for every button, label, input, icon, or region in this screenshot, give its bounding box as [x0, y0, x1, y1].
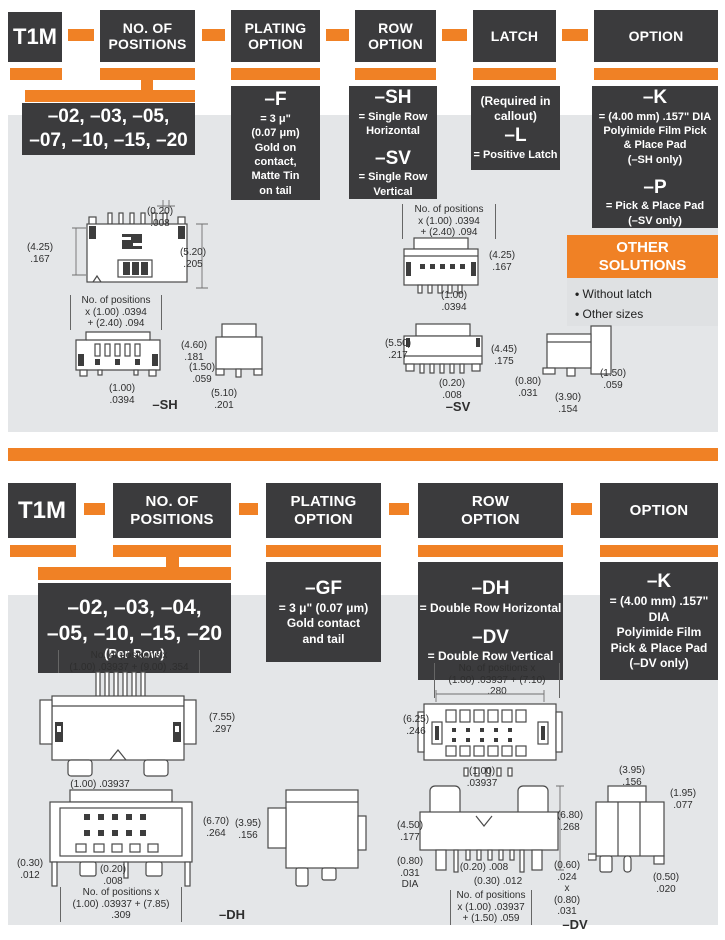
dim-label: (4.25) .167	[20, 242, 60, 265]
dim-label: (0.30) .012	[464, 876, 532, 888]
dim-label: (6.25) .246	[396, 714, 436, 737]
positions-values-2: –02, –03, –04, –05, –10, –15, –20	[47, 595, 222, 645]
dim-label: (0.20) .008	[136, 206, 184, 229]
underline-bar	[355, 68, 436, 80]
dim-formula: No. of positions x (1.00) .0394 + (2.40)…	[70, 295, 162, 330]
option-desc-k: = (4.00 mm) .157" DIA Polyimide Film Pic…	[599, 110, 712, 167]
underline-bar	[231, 68, 320, 80]
connector-stub	[166, 557, 179, 567]
dim-label: (0.80) .031 DIA	[390, 856, 430, 891]
option-code-p: –P	[643, 177, 666, 199]
plating-detail-box-2: –GF = 3 μ" (0.07 μm) Gold contact and ta…	[266, 562, 381, 662]
underline-bar	[10, 545, 76, 557]
plating-code: –F	[264, 89, 286, 111]
dim-label: (5.50) .217	[378, 338, 418, 361]
row-desc-dh: = Double Row Horizontal	[420, 601, 562, 617]
row-code-dh: –DH	[471, 578, 509, 600]
dim-formula: No. of positions x (1.00) .03937 + (1.50…	[450, 890, 532, 925]
latch-header-box: LATCH	[473, 10, 556, 62]
flow-connector-dash	[202, 29, 225, 41]
connector-wide-bar	[38, 567, 231, 580]
flow-connector-dash	[571, 503, 592, 515]
option-detail-box-2: –K = (4.00 mm) .157" DIA Polyimide Film …	[600, 562, 718, 680]
other-solutions-title: OTHER SOLUTIONS	[599, 239, 687, 275]
option-header-label-2: OPTION	[630, 502, 689, 519]
latch-header-label: LATCH	[491, 28, 538, 44]
sv-view-label: –SV	[438, 400, 478, 415]
positions-header-box-2: NO. OF POSITIONS	[113, 483, 231, 538]
dim-label: (1.00) .0394	[432, 290, 476, 313]
row-code-sv: –SV	[375, 148, 411, 170]
dim-label: (0.60) .024 x (0.80) .031	[548, 860, 586, 918]
underline-bar	[594, 68, 718, 80]
underline-bar	[10, 68, 62, 80]
option-desc-p: = Pick & Place Pad (–SV only)	[606, 199, 704, 228]
dv-view-label: –DV	[553, 918, 597, 933]
part-number-label: T1M	[13, 24, 57, 50]
option-code-k: –K	[643, 87, 667, 109]
dim-label: (1.50) .059	[592, 368, 634, 391]
positions-header-box: NO. OF POSITIONS	[100, 10, 195, 62]
positions-header-label: NO. OF POSITIONS	[108, 20, 186, 52]
dim-label: (0.50) .020	[644, 872, 688, 895]
dim-label: (0.30) .012	[10, 858, 50, 881]
datasheet-page: T1M NO. OF POSITIONS PLATING OPTION ROW …	[0, 0, 725, 940]
option-header-label: OPTION	[629, 28, 684, 44]
dim-label: (6.80) .268	[550, 810, 590, 833]
row-code-dv: –DV	[472, 627, 509, 649]
underline-bar	[473, 68, 556, 80]
positions-header-label-2: NO. OF POSITIONS	[130, 493, 213, 528]
dim-label: (0.20) .008	[92, 864, 134, 887]
row-header-label: ROW OPTION	[368, 20, 423, 52]
flow-connector-dash	[68, 29, 94, 41]
option-desc-k2: = (4.00 mm) .157" DIA Polyimide Film Pic…	[600, 594, 718, 672]
dim-label: (4.25) .167	[482, 250, 522, 273]
dim-label: (0.20) .008	[452, 862, 516, 874]
dim-label: (7.55) .297	[200, 712, 244, 735]
flow-connector-dash	[239, 503, 258, 515]
flow-connector-dash	[84, 503, 105, 515]
flow-connector-dash	[389, 503, 409, 515]
dim-formula: No. of positions x (1.00) .0394 + (2.40)…	[402, 204, 496, 239]
option-header-box-2: OPTION	[600, 483, 718, 538]
dim-label: (5.20) .205	[172, 247, 214, 270]
row-header-box: ROW OPTION	[355, 10, 436, 62]
row-header-box-2: ROW OPTION	[418, 483, 563, 538]
sv-top-view-drawing	[396, 236, 486, 294]
latch-code: –L	[504, 125, 526, 147]
plating-desc-2: = 3 μ" (0.07 μm) Gold contact and tail	[279, 601, 368, 648]
plating-desc: = 3 μ" (0.07 μm) Gold on contact, Matte …	[251, 112, 299, 198]
plating-header-label-2: PLATING OPTION	[290, 493, 356, 528]
positions-values: –02, –03, –05, –07, –10, –15, –20	[29, 105, 187, 153]
other-solutions-body: Without latch Other sizes	[567, 278, 718, 326]
plating-detail-box: –F = 3 μ" (0.07 μm) Gold on contact, Mat…	[231, 86, 320, 200]
underline-bar	[100, 68, 195, 80]
sh-view-label: –SH	[145, 398, 185, 413]
underline-bar	[113, 545, 231, 557]
latch-desc: = Positive Latch	[473, 148, 557, 162]
dim-label: (0.20) .008	[430, 378, 474, 401]
section-divider-bar	[8, 448, 718, 461]
flow-connector-dash	[562, 29, 588, 41]
flow-connector-dash	[326, 29, 349, 41]
dim-label: (5.10) .201	[200, 388, 248, 411]
plating-header-label: PLATING OPTION	[245, 20, 307, 52]
dim-label: (1.00) .0394	[98, 383, 146, 406]
other-solutions-header: OTHER SOLUTIONS	[567, 235, 718, 278]
latch-detail-box: (Required in callout) –L = Positive Latc…	[471, 86, 560, 170]
row-code-sh: –SH	[375, 87, 412, 109]
dim-label: (0.80) .031	[508, 376, 548, 399]
part-number-label-2: T1M	[18, 497, 66, 525]
row-desc-sv: = Single Row Vertical	[359, 170, 428, 199]
option-detail-box: –K = (4.00 mm) .157" DIA Polyimide Film …	[592, 86, 718, 228]
row-desc-sh: = Single Row Horizontal	[359, 110, 428, 139]
underline-bar	[418, 545, 563, 557]
part-number-box-2: T1M	[8, 483, 76, 538]
option-header-box: OPTION	[594, 10, 718, 62]
dim-label: (4.45) .175	[484, 344, 524, 367]
part-number-box: T1M	[8, 12, 62, 62]
dv-side-view-drawing	[588, 784, 672, 878]
underline-bar	[266, 545, 381, 557]
plating-code-2: –GF	[305, 578, 342, 600]
connector-stub	[141, 80, 153, 90]
dim-formula: No. of positions x (1.00) .03937 + (7.85…	[60, 887, 182, 922]
row-header-label-2: ROW OPTION	[461, 493, 520, 528]
plating-header-box-2: PLATING OPTION	[266, 483, 381, 538]
flow-connector-dash	[442, 29, 467, 41]
positions-values-box: –02, –03, –05, –07, –10, –15, –20	[22, 103, 195, 155]
option-code-k2: –K	[647, 571, 671, 593]
row-detail-box: –SH = Single Row Horizontal –SV = Single…	[349, 86, 437, 199]
dh-side-view-drawing	[260, 786, 372, 888]
dim-label: (4.50) .177	[390, 820, 430, 843]
dh-view-label: –DH	[210, 908, 254, 923]
connector-wide-bar	[25, 90, 195, 102]
plating-header-box: PLATING OPTION	[231, 10, 320, 62]
latch-note: (Required in callout)	[480, 94, 550, 124]
other-solutions-item: Other sizes	[575, 304, 714, 324]
underline-bar	[600, 545, 718, 557]
dh-top-view-drawing	[38, 666, 202, 780]
dim-label: (3.90) .154	[546, 392, 590, 415]
sh-front-view-drawing	[68, 326, 168, 378]
dim-label: (1.50) .059	[182, 362, 222, 385]
other-solutions-item: Without latch	[575, 284, 714, 304]
